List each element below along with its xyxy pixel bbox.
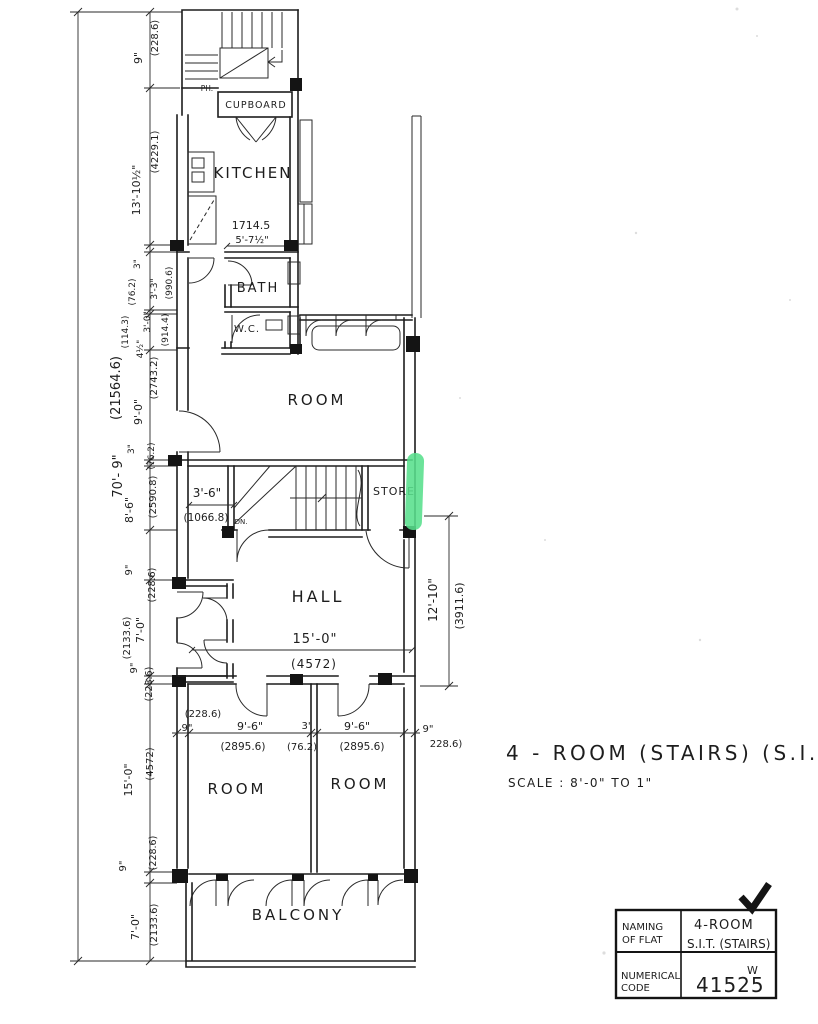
hall-width-ft: 15'-0" — [292, 632, 337, 647]
room-upper: ROOM — [177, 315, 412, 466]
hall-label: HALL — [292, 587, 345, 606]
overall-dimension: (21564.6) 70'- 9" — [70, 8, 144, 965]
cupboard: CUPBOARD — [218, 92, 292, 142]
hall: HALL 15'-0" (4572) 12'-10" (3911.6) — [172, 512, 466, 716]
drawing-title: 4 - ROOM (STAIRS) (S.I.T) — [506, 741, 818, 765]
dim-l3d-mm: (990.6) — [165, 267, 175, 300]
dim-l11-ft: 9" — [118, 861, 129, 872]
stair-width-ft: 3'-6" — [193, 486, 221, 500]
ph-label: PH. — [201, 84, 213, 93]
dim-l9-mm: (228.6) — [144, 667, 155, 702]
dim-l9-ft: 9" — [129, 663, 140, 674]
dim-l3a-mm: (114.3) — [121, 316, 131, 349]
checkmark — [741, 884, 769, 909]
dim-l2-ft: 13'-10½" — [130, 165, 143, 216]
balcony-label: BALCONY — [252, 906, 345, 924]
legend-box: NAMING OF FLAT 4-ROOM S.I.T. (STAIRS) NU… — [616, 910, 776, 998]
kitchen-width-mm: 1714.5 — [232, 219, 271, 232]
dim-b1-mm: (2895.6) — [221, 741, 266, 753]
naming-value-line2: S.I.T. (STAIRS) — [687, 937, 770, 951]
dim-l4-mm: (2743.2) — [149, 357, 160, 400]
naming-label-line2: OF FLAT — [622, 935, 663, 946]
dim-l12-mm: (2133.6) — [149, 904, 160, 947]
naming-value-line1: 4-ROOM — [694, 918, 754, 933]
hall-side-mm: (3911.6) — [453, 582, 466, 629]
code-label-line1: NUMERICAL — [621, 971, 680, 982]
scan-noise — [459, 8, 791, 955]
dim-l7-mm: (228.6) — [147, 568, 158, 603]
floor-plan-sheet: (21564.6) 70'- 9" 9" (228.6) 13'-10½" (4… — [0, 0, 818, 1024]
dim-b4-mm: 228.6) — [430, 739, 463, 750]
dim-b3-ft: 9'-6" — [344, 720, 370, 733]
wall-piers — [168, 240, 420, 466]
dim-l3b-ft: 3'-0" — [143, 311, 153, 332]
dim-l6-ft: 8'-6" — [123, 497, 136, 523]
left-dimension-chain: 9" (228.6) 13'-10½" (4229.1) (114.3) (76… — [118, 8, 186, 965]
floor-plan-svg: (21564.6) 70'- 9" 9" (228.6) 13'-10½" (4… — [0, 0, 818, 1024]
room-upper-label: ROOM — [288, 391, 347, 409]
dim-b0-mm: (228.6) — [185, 709, 222, 720]
balcony: BALCONY — [186, 883, 415, 967]
dim-l3c-ft: 3" — [133, 259, 143, 269]
dim-l7-ft: 9" — [124, 565, 135, 576]
stairs-middle: DN. 3'-6" (1066.8) — [184, 466, 416, 568]
dim-b0-ft: 9" — [182, 723, 193, 734]
cupboard-label: CUPBOARD — [225, 100, 286, 111]
overall-dim-mm: (21564.6) — [109, 356, 124, 420]
stairwell-top: PH. — [182, 12, 302, 93]
dim-l12-ft: 7'-0" — [129, 914, 142, 940]
kitchen-label: KITCHEN — [214, 164, 293, 182]
dim-l2-mm: (4229.1) — [150, 131, 161, 174]
room-right-label: ROOM — [331, 775, 390, 793]
bath-label: BATH — [237, 281, 280, 296]
dim-l3c-mm: (76.2) — [128, 278, 138, 305]
dim-l5-mm: (76.2) — [147, 442, 157, 469]
dim-l3d-ft: 3'-3" — [150, 278, 160, 299]
overall-dim-ft: 70'- 9" — [111, 454, 126, 497]
kitchen: KITCHEN 1714.5 5'-7½" — [177, 120, 312, 283]
naming-label-line1: NAMING — [622, 922, 663, 933]
dn-label: DN. — [235, 518, 248, 526]
dim-l8-mm: (2133.6) — [122, 617, 133, 660]
room-left-label: ROOM — [208, 780, 267, 798]
dim-l4-ft: 9'-0" — [132, 399, 145, 425]
dim-b1-ft: 9'-6" — [237, 720, 263, 733]
dim-l10-ft: 15'-0" — [122, 763, 135, 796]
dim-l1-ft: 9" — [132, 52, 145, 64]
dim-b2-mm: (76.2) — [287, 742, 317, 753]
dim-l3a-ft: 4½" — [136, 340, 146, 359]
dim-b3-mm: (2895.6) — [340, 741, 385, 753]
kitchen-width-ft: 5'-7½" — [235, 234, 268, 246]
dim-l6-mm: (2590.8) — [148, 476, 159, 519]
title-block: 4 - ROOM (STAIRS) (S.I.T) SCALE : 8'-0" … — [506, 741, 818, 790]
hall-side-ft: 12'-10" — [426, 578, 440, 622]
dim-l1-mm: (228.6) — [150, 20, 161, 57]
dim-l5-ft: 3" — [127, 444, 137, 454]
drawing-scale: SCALE : 8'-0" TO 1" — [508, 776, 653, 790]
code-superscript: W — [747, 964, 758, 977]
dim-l8-ft: 7'-0" — [134, 617, 147, 643]
stair-width-mm: (1066.8) — [184, 512, 229, 524]
dim-l3b-mm: (914.4) — [161, 314, 171, 347]
bath-wc: BATH W.C. — [177, 261, 300, 354]
dim-l11-mm: (228.6) — [148, 836, 159, 871]
highlight-marker — [405, 453, 425, 531]
dim-b4-ft: 9" — [423, 724, 434, 735]
code-label-line2: CODE — [621, 983, 650, 994]
hall-width-mm: (4572) — [291, 657, 337, 671]
dim-l10-mm: (4572) — [145, 747, 156, 780]
